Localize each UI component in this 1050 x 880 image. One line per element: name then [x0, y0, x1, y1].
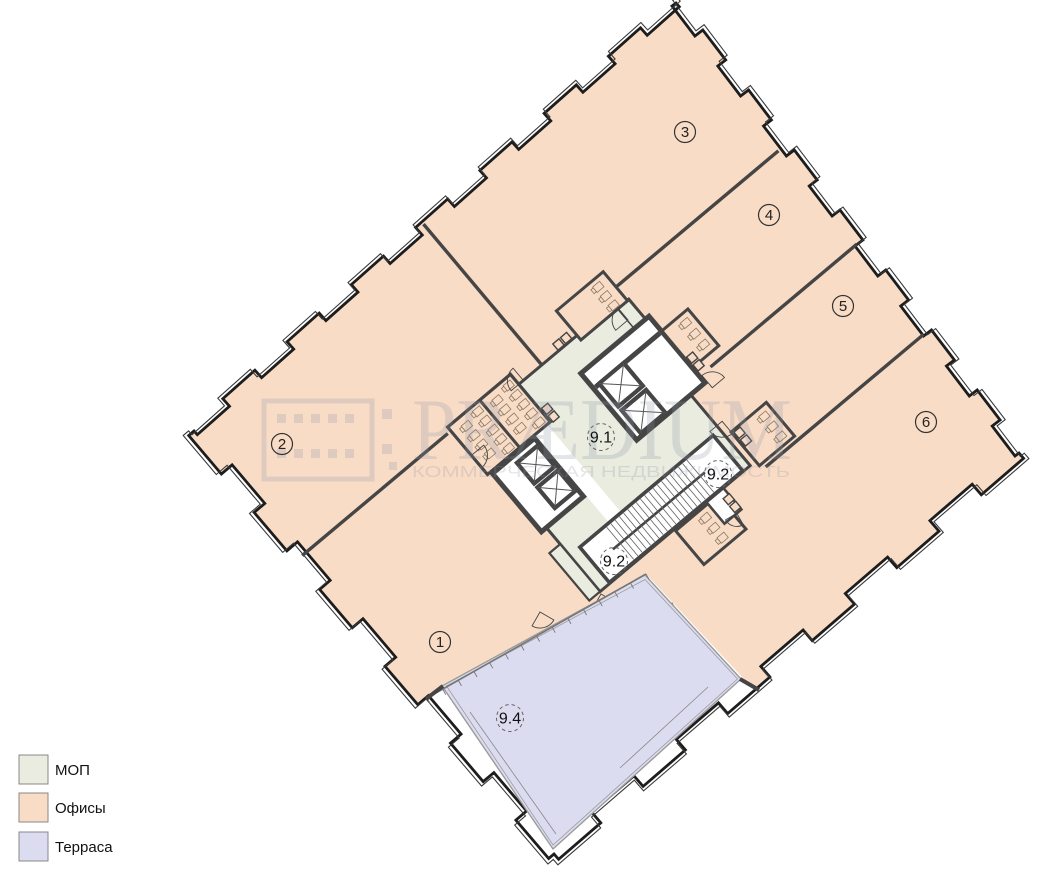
svg-text:9.1: 9.1	[590, 430, 612, 447]
svg-text:9.4: 9.4	[499, 711, 521, 728]
svg-text:2: 2	[278, 436, 286, 453]
svg-text:9.2: 9.2	[707, 467, 729, 484]
svg-text:Терраса: Терраса	[55, 839, 113, 856]
svg-text:МОП: МОП	[55, 762, 90, 779]
svg-text:3: 3	[681, 124, 689, 141]
svg-text:Офисы: Офисы	[55, 800, 106, 817]
svg-text:1: 1	[436, 634, 444, 651]
svg-text:4: 4	[765, 207, 773, 224]
svg-text:КОММЕРЧЕСКАЯ НЕДВИЖИМОСТЬ: КОММЕРЧЕСКАЯ НЕДВИЖИМОСТЬ	[412, 464, 790, 481]
svg-text:9.2: 9.2	[603, 554, 625, 571]
svg-text:5: 5	[839, 298, 847, 315]
svg-text:6: 6	[922, 414, 930, 431]
